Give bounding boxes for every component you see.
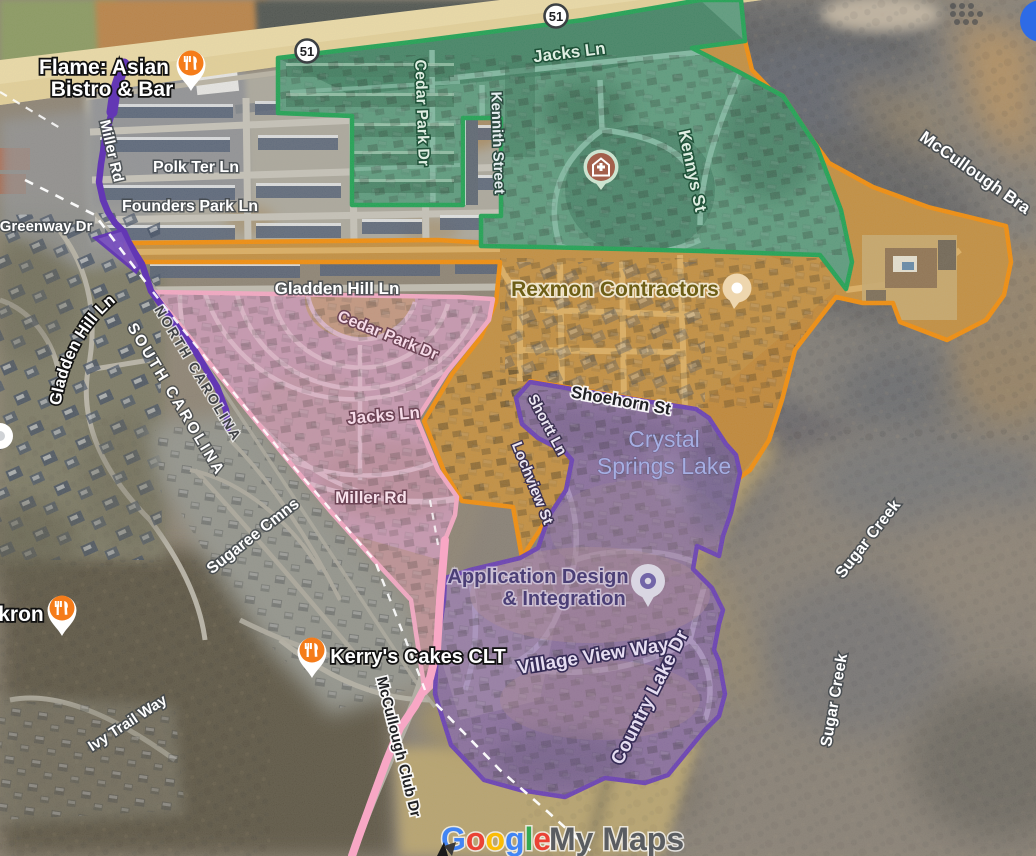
svg-text:& Integration: & Integration — [502, 588, 625, 610]
svg-text:kron: kron — [0, 603, 44, 626]
svg-text:Kennith Street: Kennith Street — [487, 91, 508, 194]
svg-text:51: 51 — [549, 9, 563, 24]
svg-text:Crystal: Crystal — [628, 426, 700, 452]
svg-text:Application Design: Application Design — [447, 566, 628, 588]
svg-text:Rexmon Contractors: Rexmon Contractors — [511, 278, 719, 301]
svg-text:51: 51 — [300, 44, 314, 59]
svg-text:Flame: Asian: Flame: Asian — [39, 56, 169, 79]
svg-text:Google: Google — [441, 821, 551, 856]
svg-text:Kerry's Cakes CLT: Kerry's Cakes CLT — [330, 646, 506, 668]
svg-text:Founders Park Ln: Founders Park Ln — [122, 198, 258, 215]
svg-text:Miller Rd: Miller Rd — [335, 488, 407, 507]
svg-text:Gladden Hill Ln: Gladden Hill Ln — [275, 279, 400, 298]
svg-text:Bistro & Bar: Bistro & Bar — [51, 78, 174, 101]
svg-text:Springs Lake: Springs Lake — [597, 453, 731, 479]
svg-text:Polk Ter Ln: Polk Ter Ln — [153, 159, 239, 176]
svg-text:Greenway Dr: Greenway Dr — [0, 218, 92, 235]
svg-text:My Maps: My Maps — [549, 821, 684, 856]
